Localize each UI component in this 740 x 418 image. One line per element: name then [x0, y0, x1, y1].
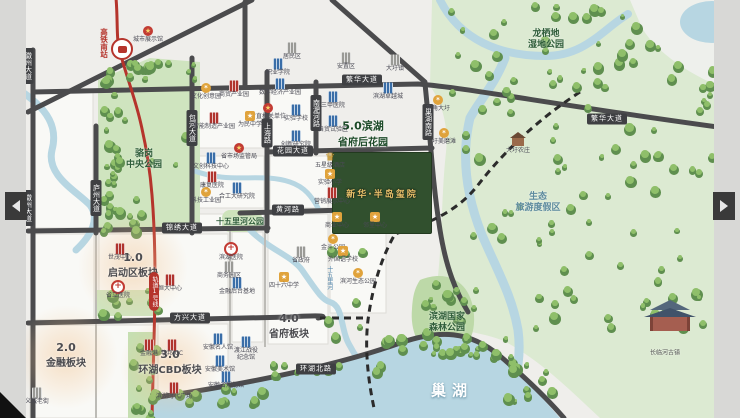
region-name: 省府后花园 [338, 134, 388, 149]
poi-label-34: 商务园区 [205, 273, 253, 280]
road-label-0: 繁华大道 [342, 75, 382, 86]
poi-icon-42[interactable] [144, 340, 154, 351]
region-number: 2.0 [46, 341, 86, 354]
poi-icon-27[interactable]: ★ [332, 212, 342, 222]
region-name: 环湖CBD板块 [138, 361, 201, 376]
road-label-5: 方兴大道 [170, 313, 210, 324]
region-label-1: 2.0金融板块 [46, 341, 86, 369]
poi-icon-23[interactable] [207, 172, 217, 183]
poi-icon-36[interactable]: ★ [279, 272, 289, 282]
poi-icon-20[interactable]: ♛ [325, 152, 335, 163]
region-name: 省府板块 [269, 325, 309, 340]
poi-icon-47[interactable] [32, 388, 42, 399]
station-name: 高铁南站 [100, 28, 108, 58]
poi-label-19: 省市场监管局 [215, 154, 263, 161]
area-label-4: 十五里河公园 [216, 217, 264, 227]
poi-label-16: 圩美磨滩 [420, 139, 468, 146]
location-map: 新华·半岛玺院 高铁南站 轨道1号线 繁华大道繁华大道花园大道黄河路锦绣大道方兴… [0, 0, 740, 418]
poi-icon-25[interactable] [232, 183, 242, 194]
poi-icon-31[interactable] [115, 244, 125, 255]
poi-icon-1[interactable] [287, 43, 297, 54]
poi-icon-24[interactable]: * [201, 187, 211, 197]
poi-label-36: 四十六中学 [260, 283, 308, 290]
area-label-1: 龙栖地 湿地公园 [528, 29, 564, 52]
poi-icon-17[interactable] [291, 131, 301, 142]
area-label-6: 十五里河 [325, 266, 333, 290]
poi-icon-22[interactable]: ★ [325, 169, 335, 179]
poi-label-22: 实验小学 [306, 180, 354, 187]
poi-icon-35[interactable]: * [353, 268, 363, 278]
poi-icon-18[interactable] [512, 138, 524, 146]
poi-label-2: 安置区 [322, 64, 370, 71]
poi-icon-16[interactable]: * [439, 128, 449, 138]
poi-label-43: 华邦ICC [148, 351, 196, 358]
poi-label-45: 安徽省规划馆 [202, 383, 250, 390]
next-image-button[interactable] [713, 192, 735, 220]
road-label-9: 庐州大道 [91, 180, 102, 216]
area-label-5: 长临河古镇 [650, 349, 680, 357]
poi-icon-13[interactable] [209, 113, 219, 124]
poi-icon-6[interactable] [229, 81, 239, 92]
poi-icon-45[interactable] [221, 372, 231, 383]
poi-label-23: 康复医院 [188, 183, 236, 190]
poi-label-9: 牛角大圩 [414, 106, 462, 113]
road-label-1: 繁华大道 [587, 114, 627, 125]
poi-label-4: 职业学院 [254, 70, 302, 77]
poi-label-39: 省立医院 [94, 293, 142, 300]
poi-icon-9[interactable]: * [433, 95, 443, 105]
poi-icon-2[interactable] [341, 53, 351, 64]
labels-layer: 繁华大道繁华大道花园大道黄河路锦绣大道方兴大道环湖北路徽州大道徽州大道庐州大道包… [0, 0, 740, 418]
poi-icon-0[interactable]: ★ [143, 26, 153, 36]
prev-image-button[interactable] [5, 192, 27, 220]
area-label-7: 巢湖 [431, 382, 473, 401]
poi-label-32: 省政府 [277, 258, 325, 265]
area-label-2: 滨湖国家 森林公园 [429, 312, 465, 335]
metro-line-badge: 轨道1号线 [149, 272, 159, 311]
poi-label-46: 滨湖时代广场 [150, 394, 198, 401]
poi-label-10: 三甲医院 [309, 103, 357, 110]
road-label-6: 环湖北路 [296, 364, 336, 375]
poi-icon-10[interactable] [328, 92, 338, 103]
poi-label-38: 金融后台基地 [213, 289, 261, 296]
poi-icon-14[interactable]: ★ [245, 111, 255, 121]
poi-icon-32[interactable] [296, 247, 306, 258]
poi-icon-7[interactable] [275, 79, 285, 90]
poi-label-12: 实验学校 [272, 116, 320, 123]
poi-icon-38[interactable] [232, 278, 242, 289]
poi-icon-15[interactable] [328, 116, 338, 127]
road-label-3: 黄河路 [272, 205, 304, 216]
poi-icon-43[interactable] [167, 340, 177, 351]
poi-label-18: 大圩农庄 [494, 148, 542, 155]
poi-label-28: 邻里中心 [351, 223, 399, 230]
poi-label-33: 外国语学校 [319, 257, 367, 264]
poi-icon-26[interactable] [327, 188, 337, 199]
poi-label-21: 文创科技中心 [187, 164, 235, 171]
poi-icon-21[interactable] [206, 153, 216, 164]
poi-label-44: 安徽美术馆 [196, 367, 244, 374]
poi-label-35: 滨河生态公园 [334, 279, 382, 286]
poi-label-25: 合工大研究院 [213, 194, 261, 201]
poi-icon-37[interactable] [165, 275, 175, 286]
left-arrow-icon [12, 200, 20, 212]
poi-label-3: 大圩镇 [371, 66, 419, 73]
poi-icon-3[interactable] [390, 55, 400, 66]
region-name: 金融板块 [46, 354, 86, 369]
poi-label-14: 为民中学 [226, 122, 274, 129]
poi-label-7: 数字经济产业园 [256, 90, 304, 97]
poi-label-29: 金斗公园 [309, 245, 357, 252]
corner-wedge [0, 392, 26, 418]
poi-icon-34[interactable] [224, 262, 234, 273]
poi-label-17: 创新研究院 [272, 142, 320, 149]
area-label-3: 生态 旅游度假区 [515, 192, 560, 215]
poi-icon-19[interactable]: ★ [234, 143, 244, 153]
poi-label-26: 营销展示中心 [308, 199, 356, 206]
road-label-4: 锦绣大道 [162, 223, 202, 234]
poi-label-15: 自贸试验区 [309, 127, 357, 134]
poi-icon-46[interactable] [169, 383, 179, 394]
region-label-3: 4.0省府板块 [269, 312, 309, 340]
poi-label-31: 世茂中心 [96, 255, 144, 262]
poi-icon-11[interactable]: ★ [263, 103, 273, 113]
poi-icon-41[interactable] [241, 337, 251, 348]
poi-icon-4[interactable] [273, 59, 283, 70]
poi-icon-33[interactable]: ★ [338, 246, 348, 256]
poi-label-8: 滨湖卓越城 [364, 94, 412, 101]
area-label-0: 骆岗 中央公园 [126, 149, 162, 172]
region-number: 4.0 [269, 312, 309, 325]
poi-icon-28[interactable]: ★ [370, 212, 380, 222]
poi-label-41: 渡江战役 纪念馆 [222, 348, 270, 362]
train-station-icon[interactable] [111, 38, 133, 60]
poi-icon-29[interactable]: * [328, 234, 338, 244]
poi-label-6: 商贸产业园 [210, 92, 258, 99]
poi-icon-8[interactable] [383, 83, 393, 94]
poi-icon-44[interactable] [215, 356, 225, 367]
right-arrow-icon [720, 200, 728, 212]
poi-icon-12[interactable] [291, 105, 301, 116]
poi-icon-40[interactable] [213, 334, 223, 345]
